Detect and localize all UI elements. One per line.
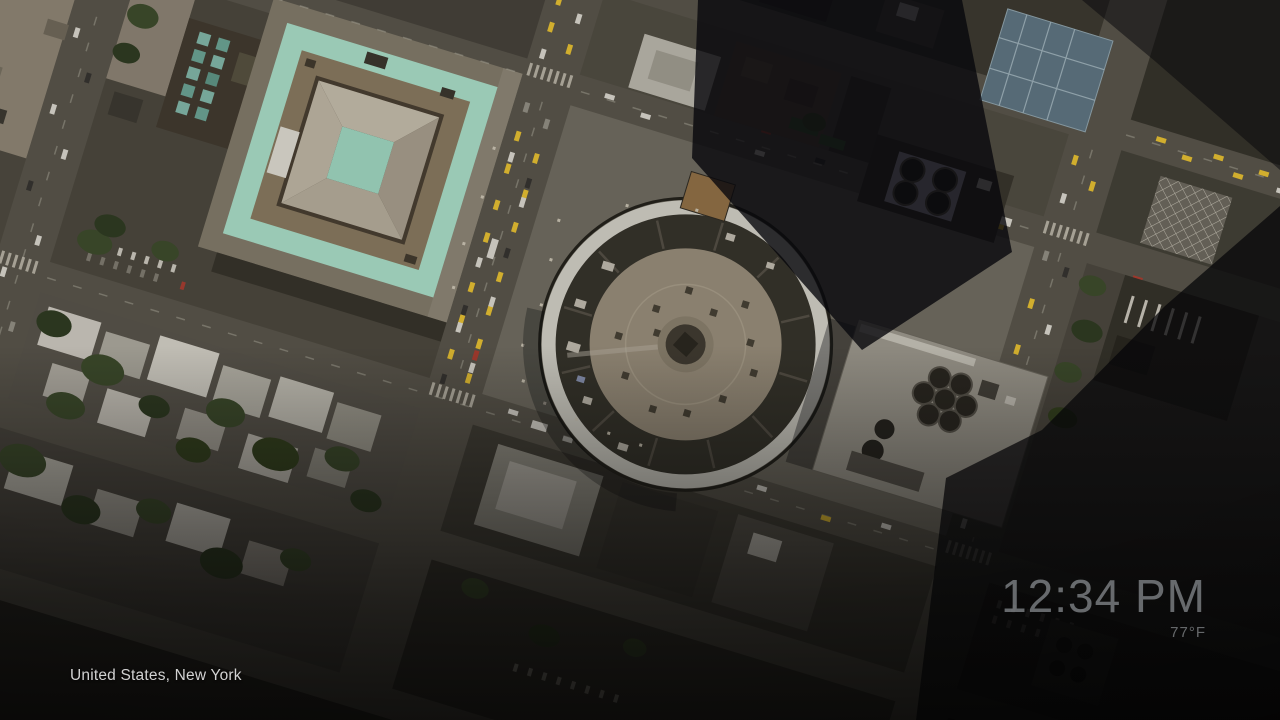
- lock-screen[interactable]: United States, New York 12:34 PM 77°F: [0, 0, 1280, 720]
- clock-block: 12:34 PM 77°F: [1001, 572, 1206, 641]
- temperature-label: 77°F: [1170, 624, 1206, 641]
- clock-time: 12:34 PM: [1001, 572, 1206, 620]
- location-label: United States, New York: [70, 667, 242, 685]
